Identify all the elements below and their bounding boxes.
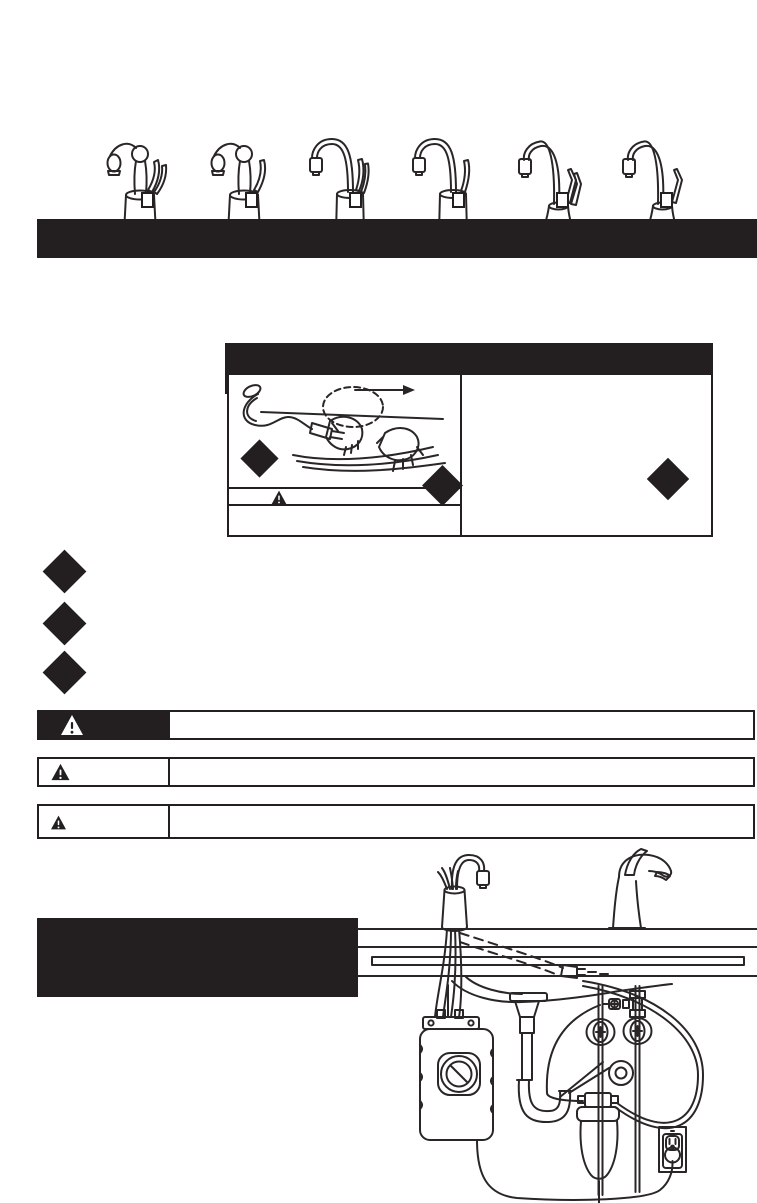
warning-panel-divider — [460, 375, 462, 535]
diamond-bullet-1 — [43, 550, 87, 594]
warning-panel — [225, 343, 713, 537]
diamond-bullet-3 — [43, 651, 87, 695]
manual-page — [0, 0, 757, 1203]
warning-triangle-icon — [50, 815, 67, 830]
warning-triangle-icon — [50, 763, 71, 781]
kitchen-faucet — [609, 849, 671, 928]
countertop — [357, 929, 757, 976]
power-cord-connector — [460, 933, 608, 978]
warning-bar — [37, 710, 755, 740]
notice-bar — [37, 804, 755, 839]
model-checkbox-3[interactable] — [349, 192, 362, 208]
model-selector-row — [0, 60, 757, 220]
model-checkbox-6[interactable] — [660, 192, 673, 208]
warning-panel-header — [225, 343, 713, 373]
warning-rule-bottom — [229, 504, 460, 506]
title-banner — [37, 219, 757, 258]
section-title-block — [37, 918, 358, 997]
installation-diagram — [357, 845, 757, 1203]
diamond-bullet-2 — [43, 602, 87, 646]
caution-bar — [37, 757, 755, 787]
model-checkbox-5[interactable] — [556, 192, 569, 208]
model-checkbox-4[interactable] — [452, 192, 465, 208]
warning-bar-content — [168, 710, 755, 740]
filter-tubing — [547, 981, 703, 1128]
notice-bar-divider — [168, 806, 170, 837]
warning-bar-label-cell — [37, 710, 168, 740]
diamond-bullet — [647, 458, 689, 500]
hot-water-dispenser-faucet — [438, 855, 489, 931]
model-checkbox-2[interactable] — [245, 192, 258, 208]
model-checkbox-1[interactable] — [141, 192, 154, 208]
warning-triangle-icon — [59, 714, 85, 736]
warning-triangle-icon — [269, 490, 289, 505]
warning-panel-body — [227, 373, 713, 537]
caution-bar-divider — [168, 759, 170, 785]
dispenser-tank — [420, 929, 493, 1140]
